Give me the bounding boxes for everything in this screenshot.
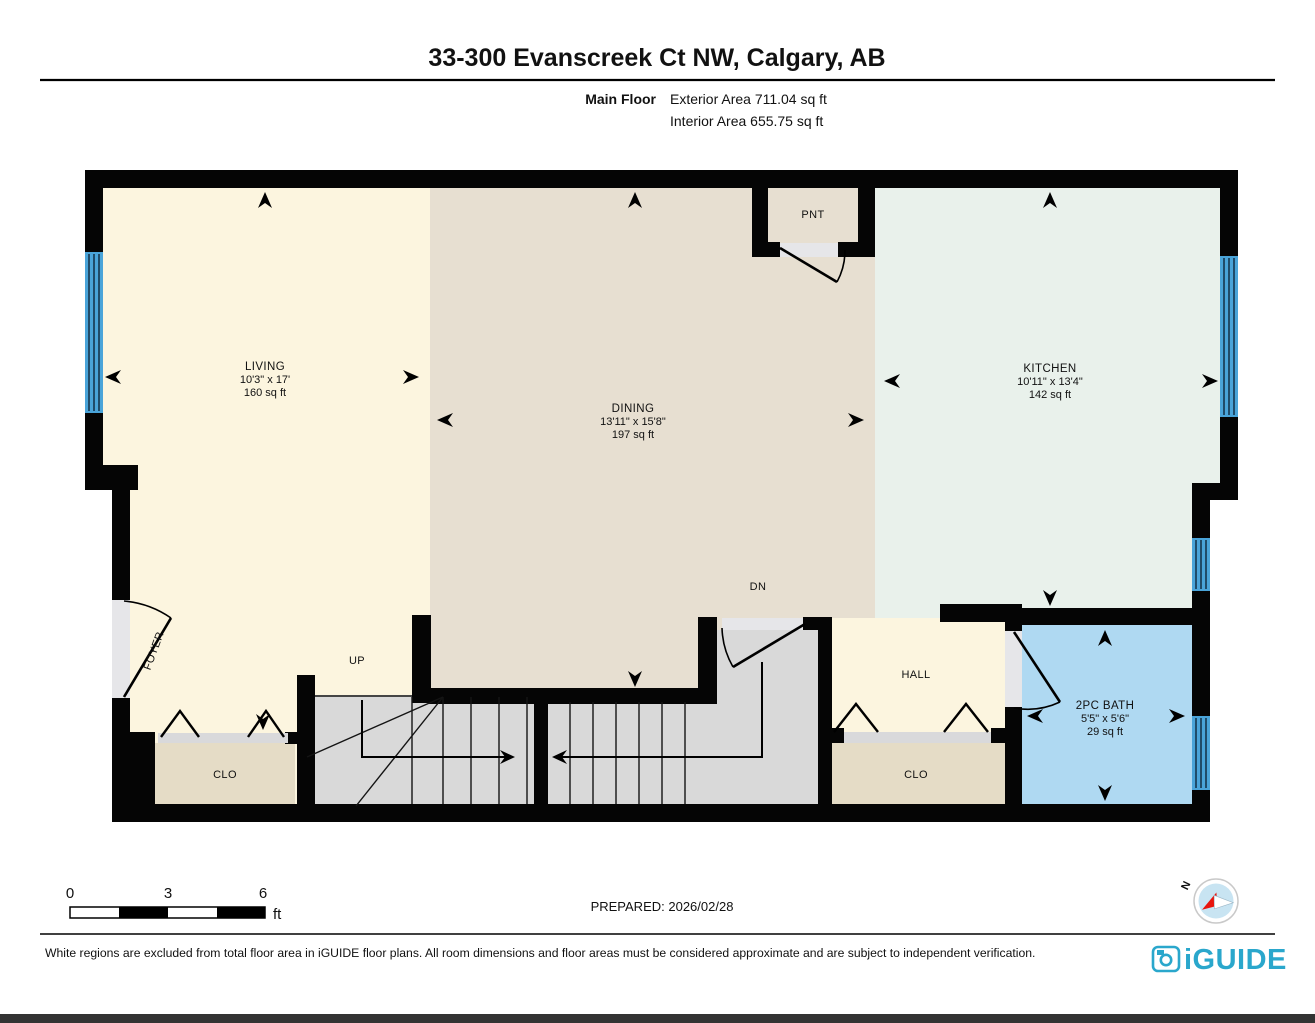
window-kitchen-small: [1192, 538, 1210, 591]
bath-area: 29 sq ft: [1087, 726, 1123, 738]
closet-left-track: [158, 733, 288, 743]
dining-area: 197 sq ft: [612, 429, 654, 441]
scale-tick-6: 6: [259, 885, 267, 902]
stairs-down-label: DN: [750, 581, 767, 593]
bath-label: 2PC BATH: [1076, 700, 1135, 712]
stairs-up-label: UP: [349, 655, 365, 667]
scale-bar: 0 3 6 ft: [66, 885, 282, 923]
scale-unit: ft: [273, 906, 282, 923]
disclaimer-text: White regions are excluded from total fl…: [45, 946, 1035, 960]
stairs-landing-floor: [702, 630, 818, 805]
bottom-bar: [0, 1014, 1315, 1023]
kitchen-area: 142 sq ft: [1029, 389, 1071, 401]
prepared-date: PREPARED: 2026/02/28: [591, 899, 734, 914]
kitchen-floor: [875, 188, 1220, 622]
pantry-label: PNT: [801, 209, 824, 221]
exterior-area: Exterior Area 711.04 sq ft: [670, 91, 827, 107]
iguide-logo-icon: [1153, 947, 1179, 971]
iguide-logo: iGUIDE: [1153, 944, 1287, 976]
scale-tick-3: 3: [164, 885, 172, 902]
living-area: 160 sq ft: [244, 387, 286, 399]
kitchen-dims: 10'11" x 13'4": [1017, 376, 1083, 388]
floorplan-canvas: 33-300 Evanscreek Ct NW, Calgary, AB Mai…: [0, 0, 1315, 1023]
kitchen-label: KITCHEN: [1023, 363, 1076, 375]
iguide-logo-text: iGUIDE: [1184, 944, 1287, 976]
hall-label: HALL: [901, 669, 930, 681]
bath-dims: 5'5" x 5'6": [1081, 713, 1129, 725]
window-kitchen-right: [1220, 256, 1238, 417]
scale-tick-0: 0: [66, 885, 74, 902]
dining-label: DINING: [612, 403, 655, 415]
window-bath: [1192, 716, 1210, 790]
stairs-up-floor: [315, 695, 534, 805]
page-title: 33-300 Evanscreek Ct NW, Calgary, AB: [428, 44, 885, 72]
stair-door-opening: [722, 618, 803, 630]
window-living-left: [85, 252, 103, 413]
pantry-door-opening: [780, 243, 838, 257]
closet-left-label: CLO: [213, 769, 237, 781]
interior-area: Interior Area 655.75 sq ft: [670, 113, 823, 129]
entry-door-opening: [112, 600, 130, 698]
compass: N: [1179, 879, 1238, 923]
living-label: LIVING: [245, 361, 285, 373]
compass-north-label: N: [1179, 880, 1193, 892]
closet-right-track: [844, 732, 991, 743]
closet-right-label: CLO: [904, 769, 928, 781]
living-dims: 10'3" x 17': [240, 374, 290, 386]
dining-dims: 13'11" x 15'8": [600, 416, 666, 428]
floorplan-page: 33-300 Evanscreek Ct NW, Calgary, AB Mai…: [0, 0, 1315, 1023]
floor-label: Main Floor: [585, 91, 656, 107]
